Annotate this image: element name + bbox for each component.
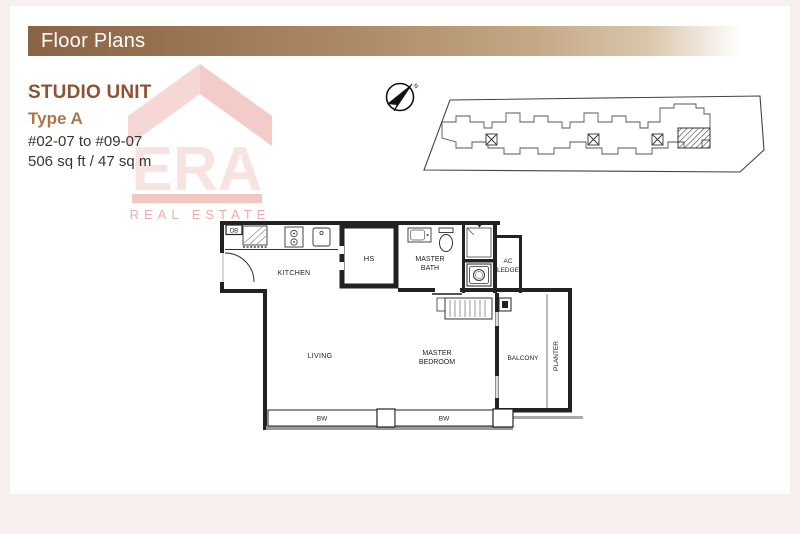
unit-range: #02-07 to #09-07 [28, 133, 152, 150]
bw-column-left [377, 409, 395, 427]
page-title: Floor Plans [41, 30, 145, 52]
room-label-bedroom-1: MASTER [422, 350, 451, 357]
unit-area: 506 sq ft / 47 sq m [28, 153, 152, 170]
site-key-plan [412, 92, 768, 178]
hob-icon [285, 227, 303, 247]
fridge-icon [243, 226, 267, 247]
room-label-ac-ledge-1: AC [503, 258, 512, 265]
entry-door-swing [225, 253, 254, 282]
unit-info: STUDIO UNIT Type A #02-07 to #09-07 506 … [28, 82, 152, 170]
room-label-bedroom-2: BEDROOM [419, 359, 455, 366]
page: ERA REAL ESTATE Floor Plans STUDIO UNIT … [0, 0, 800, 534]
balcony-fixture-icon [499, 298, 511, 311]
wardrobe-icon [437, 298, 492, 319]
unit-name: STUDIO UNIT [28, 82, 152, 104]
room-label-balcony: BALCONY [507, 355, 539, 362]
washer-icon [467, 264, 491, 286]
basin-icon [408, 228, 431, 242]
room-label-hs: HS [364, 254, 374, 263]
room-label-ac-ledge-2: LEDGE [497, 267, 520, 274]
era-chevron-icon-right [200, 64, 272, 146]
page-card: ERA REAL ESTATE Floor Plans STUDIO UNIT … [10, 6, 790, 494]
section-title-bar: Floor Plans [28, 26, 756, 56]
label-bw-left: BW [317, 416, 328, 423]
compass-north-label: N [412, 83, 419, 90]
room-label-planter: PLANTER [553, 341, 560, 371]
unit-type: Type A [28, 109, 152, 129]
room-label-master-bath-1: MASTER [415, 256, 444, 263]
sink-icon [313, 228, 330, 246]
toilet-icon [439, 228, 453, 252]
room-label-master-bath-2: BATH [421, 265, 439, 272]
room-label-kitchen: KITCHEN [278, 270, 311, 277]
room-label-db: DB [230, 229, 238, 235]
era-logo-bar [132, 194, 262, 203]
room-label-living: LIVING [308, 353, 333, 360]
bw-column-right [493, 409, 513, 427]
building-footprint [442, 104, 710, 154]
shower-icon [467, 223, 491, 257]
floor-plan: DB KITCHEN [210, 216, 590, 441]
label-bw-right: BW [439, 416, 450, 423]
highlighted-unit [678, 128, 710, 148]
